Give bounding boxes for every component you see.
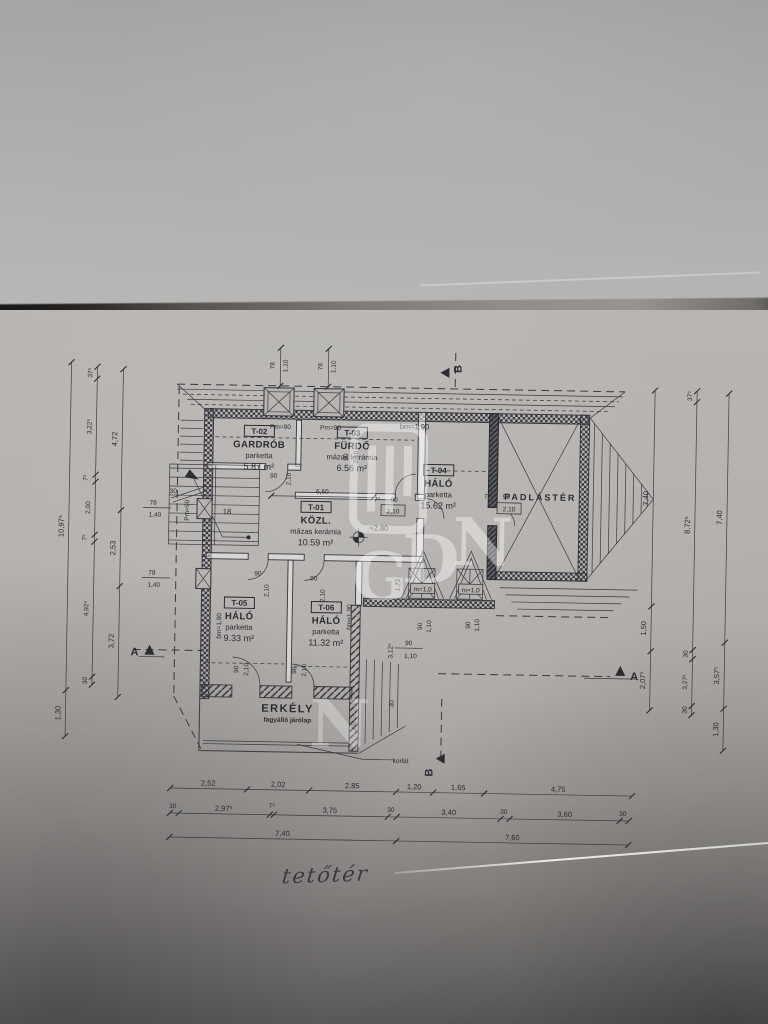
room-label-t05: T-05 HÁLÓ parketta 9.33 m² (223, 597, 254, 644)
svg-text:30: 30 (169, 803, 177, 810)
floor-plan-drawing: 18 (0, 0, 768, 1024)
svg-text:3,40: 3,40 (441, 808, 456, 817)
room-code: T-02 (251, 427, 268, 436)
room-finish: parketta (245, 451, 273, 460)
svg-text:7⁵: 7⁵ (484, 493, 491, 500)
svg-text:N: N (452, 503, 514, 582)
svg-text:3,12⁵: 3,12⁵ (387, 643, 394, 659)
room-name: HÁLÓ (312, 614, 341, 626)
svg-text:30: 30 (170, 488, 178, 495)
svg-text:7,40: 7,40 (275, 829, 290, 838)
room-code: T-01 (308, 503, 325, 512)
dim-chain-right-outer: 7,40 3,57⁵ 1,30 (711, 391, 732, 754)
roof-window-2 (314, 388, 344, 417)
svg-text:2,02: 2,02 (271, 780, 286, 789)
svg-text:37⁵: 37⁵ (687, 391, 694, 401)
svg-text:A: A (630, 671, 638, 683)
svg-text:2,97⁵: 2,97⁵ (215, 804, 233, 813)
stair-count: 18 (223, 507, 231, 516)
svg-text:30: 30 (82, 676, 89, 684)
dim-chain-bottom-2: 30 2,97⁵ 7⁵ 3,75 30 3,40 30 3,60 30 (167, 801, 632, 824)
svg-text:7⁵: 7⁵ (83, 474, 90, 481)
svg-text:1,10: 1,10 (474, 619, 481, 632)
svg-text:6,60: 6,60 (316, 489, 329, 496)
room-name: GARDRÓB (233, 438, 285, 451)
svg-text:7,60: 7,60 (505, 833, 520, 842)
staircase: 18 (168, 464, 259, 546)
attic-label: PADLÁSTÉR (504, 492, 577, 503)
dim-chain-right-mid: 37⁵ 8,72⁵ 30 3,27⁵ 30 (679, 388, 700, 718)
section-marker-a-right: A (438, 663, 638, 683)
svg-text:2,07⁵: 2,07⁵ (638, 671, 647, 689)
room-name: HÁLÓ (225, 610, 254, 622)
svg-text:1,40: 1,40 (147, 582, 160, 589)
dim-chain-left-inner: 4,72 2,53 3,72 (106, 366, 127, 700)
roof-window-1 (264, 388, 294, 417)
side-window-1 (197, 498, 212, 518)
svg-text:90: 90 (503, 494, 511, 501)
svg-text:90: 90 (233, 665, 240, 673)
svg-text:10,97⁵: 10,97⁵ (57, 515, 66, 537)
room-area: 5.87 m² (243, 461, 274, 472)
svg-text:2,10: 2,10 (285, 472, 292, 485)
room-name: HÁLÓ (424, 477, 453, 489)
svg-text:7,40: 7,40 (715, 510, 724, 525)
svg-text:B: B (423, 768, 435, 776)
svg-text:90: 90 (254, 570, 262, 577)
svg-text:2,53: 2,53 (108, 541, 117, 556)
svg-text:2,00: 2,00 (85, 501, 92, 514)
svg-text:90: 90 (405, 640, 413, 647)
section-marker-b-bottom: B (423, 698, 445, 776)
svg-text:1,10: 1,10 (426, 620, 433, 633)
svg-text:G: G (351, 537, 409, 616)
room-code: T-05 (231, 599, 248, 608)
svg-text:Pm=90: Pm=90 (270, 424, 291, 431)
svg-text:90: 90 (465, 621, 472, 629)
svg-text:3,75: 3,75 (322, 806, 337, 815)
svg-text:7⁵: 7⁵ (269, 803, 276, 810)
svg-text:4,75: 4,75 (551, 785, 566, 794)
svg-text:90: 90 (291, 666, 298, 674)
svg-text:2,10: 2,10 (243, 663, 250, 676)
svg-text:30: 30 (389, 700, 396, 708)
svg-text:A: A (130, 646, 138, 658)
svg-text:37⁵: 37⁵ (87, 367, 94, 377)
svg-text:Pm=90: Pm=90 (320, 425, 341, 432)
svg-text:90: 90 (343, 453, 350, 461)
svg-text:2,10: 2,10 (264, 584, 271, 597)
side-window-2 (196, 568, 211, 588)
dim-chain-left-outer: 10,97⁵ 1,30 (53, 359, 75, 739)
svg-text:2,10: 2,10 (319, 589, 326, 602)
svg-text:90: 90 (310, 575, 318, 582)
photo-of-floor-plan: tetőtér (0, 0, 768, 1024)
svg-text:bm=1,90: bm=1,90 (216, 613, 223, 639)
svg-text:78: 78 (269, 362, 276, 370)
svg-text:78: 78 (317, 363, 324, 371)
svg-text:3,57⁵: 3,57⁵ (712, 667, 721, 685)
svg-text:2,10: 2,10 (301, 664, 308, 677)
svg-text:7⁵: 7⁵ (81, 534, 88, 541)
room-area: 11.32 m² (308, 637, 343, 648)
room-area: 9.33 m² (223, 633, 254, 644)
room-name: KÖZL. (300, 515, 331, 527)
svg-text:2,85: 2,85 (345, 781, 360, 790)
svg-text:30: 30 (682, 706, 689, 714)
room-finish: parketta (312, 627, 340, 636)
dim-chain-right-inner: 7,40 1,50 2,07⁵ (638, 387, 659, 713)
room-finish: parketta (425, 490, 453, 499)
svg-text:78: 78 (149, 500, 157, 507)
room-area: 10.59 m² (298, 537, 334, 548)
dim-chain-bottom-1: 2,52 2,02 2,85 1,20 1,65 4,75 (167, 778, 635, 799)
svg-text:1,20: 1,20 (407, 782, 422, 791)
svg-text:Pm=90: Pm=90 (184, 499, 191, 520)
svg-text:1,65: 1,65 (451, 783, 466, 792)
svg-text:1,50: 1,50 (639, 621, 648, 636)
svg-text:1,10: 1,10 (330, 360, 337, 373)
railing-label: korlát (393, 758, 409, 765)
svg-text:3,60: 3,60 (557, 810, 572, 819)
svg-text:8,72⁵: 8,72⁵ (683, 516, 692, 534)
svg-text:ERKÉLY: ERKÉLY (261, 702, 314, 716)
section-marker-a-left: A (130, 644, 200, 659)
svg-text:1,30: 1,30 (711, 722, 720, 737)
svg-text:78: 78 (148, 570, 156, 577)
svg-text:90: 90 (417, 622, 424, 630)
room-label-t06: T-06 HÁLÓ parketta 11.32 m² (308, 601, 344, 648)
svg-text:1,40: 1,40 (149, 512, 162, 519)
svg-text:3,72: 3,72 (107, 634, 116, 649)
room-code: T-06 (318, 603, 335, 612)
svg-text:4,92⁵: 4,92⁵ (83, 601, 90, 617)
svg-text:30: 30 (683, 650, 690, 658)
dormer-label: m=1,0 (461, 587, 480, 594)
svg-text:B: B (452, 365, 464, 373)
svg-text:N: N (309, 684, 371, 763)
svg-text:30: 30 (387, 807, 395, 814)
svg-text:1,10: 1,10 (404, 653, 417, 660)
svg-text:30: 30 (500, 809, 508, 816)
room-label-t01: T-01 KÖZL. mázas kerámia 10.59 m² (290, 501, 342, 548)
svg-text:fagyálló járólap: fagyálló járólap (263, 717, 311, 725)
room-finish: parketta (225, 622, 253, 631)
watermark: G D N N (309, 426, 515, 765)
dim-chain-bottom-3: 7,40 7,60 (166, 827, 631, 848)
svg-text:7,40: 7,40 (641, 491, 650, 506)
room-code: T-04 (431, 466, 448, 475)
svg-text:3,22⁵: 3,22⁵ (86, 419, 93, 435)
section-marker-b-top: B (440, 353, 465, 387)
dim-chain-left-mid: 37⁵ 3,22⁵ 7⁵ 2,00 7⁵ 4,92⁵ 30 (79, 363, 101, 687)
room-finish: mázas kerámia (290, 527, 342, 537)
svg-text:4,72: 4,72 (110, 432, 119, 447)
svg-text:1,30: 1,30 (53, 706, 62, 721)
svg-text:90: 90 (270, 473, 278, 480)
svg-text:2,52: 2,52 (201, 779, 216, 788)
svg-text:3,27⁵: 3,27⁵ (682, 674, 689, 690)
svg-text:30: 30 (619, 811, 627, 818)
svg-text:1,10: 1,10 (282, 359, 289, 372)
